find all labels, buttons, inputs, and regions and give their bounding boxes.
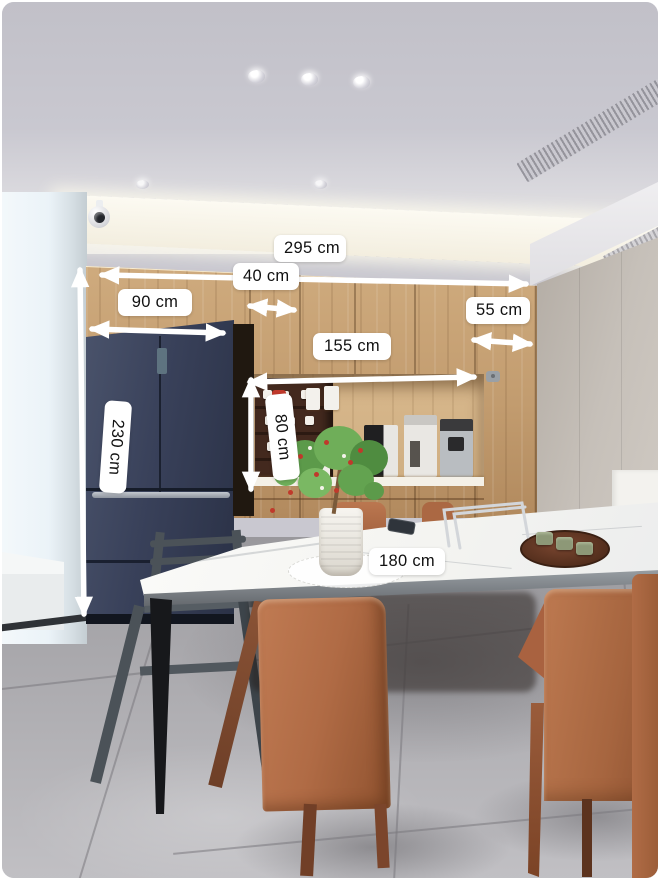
panel-seam	[535, 262, 537, 518]
chair-leg	[374, 804, 389, 869]
dimension-label-side-panel-width: 55 cm	[466, 297, 530, 324]
dimension-label-panel-width: 40 cm	[233, 263, 299, 290]
chair-leg	[582, 799, 592, 877]
green-teacup	[536, 532, 553, 545]
recessed-light	[301, 73, 318, 86]
dimension-label-niche-width: 155 cm	[313, 333, 391, 360]
dimension-label-table-length: 180 cm	[369, 548, 445, 575]
plant-berry	[298, 454, 303, 459]
plant-bead	[342, 454, 346, 458]
dimension-text: 80 cm	[272, 413, 293, 461]
teacup	[305, 416, 314, 425]
canister	[306, 388, 320, 410]
fridge-display	[157, 348, 167, 374]
dining-chair-edge	[632, 574, 658, 878]
plant-berry	[358, 448, 363, 453]
plant-berry	[348, 460, 353, 465]
dimension-label-cabinet-total-width: 295 cm	[274, 235, 346, 262]
plant-berry	[314, 472, 319, 477]
pot-ridges	[321, 516, 361, 572]
screenshot-stage: 295 cm 40 cm 90 cm 55 cm 155 cm 230 cm 8…	[0, 0, 660, 880]
plant-pot	[319, 508, 363, 576]
high-chair-rail	[150, 535, 246, 547]
coffee-maker-window	[410, 441, 420, 467]
plant-bead	[320, 486, 324, 490]
plant-foliage	[364, 482, 384, 500]
cabinet-gap	[233, 324, 254, 516]
chair-leg	[528, 703, 544, 877]
green-teacup	[556, 537, 573, 550]
recessed-light	[353, 76, 370, 89]
canister	[324, 386, 339, 410]
recessed-light	[248, 70, 265, 83]
recessed-light	[136, 180, 149, 189]
dispenser-panel	[448, 437, 464, 451]
plant-bead	[308, 446, 312, 450]
chair-leg	[300, 804, 317, 877]
plant-berry	[270, 508, 275, 513]
recessed-light	[314, 180, 327, 189]
dimension-label-fridge-width: 90 cm	[118, 289, 192, 316]
dimension-text: 230 cm	[105, 419, 125, 476]
dining-chair-left	[260, 592, 395, 878]
security-camera-lens	[94, 212, 105, 223]
green-teacup	[576, 542, 593, 555]
plant-berry	[334, 488, 339, 493]
plant-berry	[288, 490, 293, 495]
wall-seam	[579, 230, 580, 522]
coffee-maker	[404, 415, 437, 477]
plant-berry	[324, 440, 329, 445]
kitchen-photo: 295 cm 40 cm 90 cm 55 cm 155 cm 230 cm 8…	[2, 2, 658, 878]
chair-backrest	[257, 596, 391, 811]
water-dispenser	[440, 419, 473, 477]
